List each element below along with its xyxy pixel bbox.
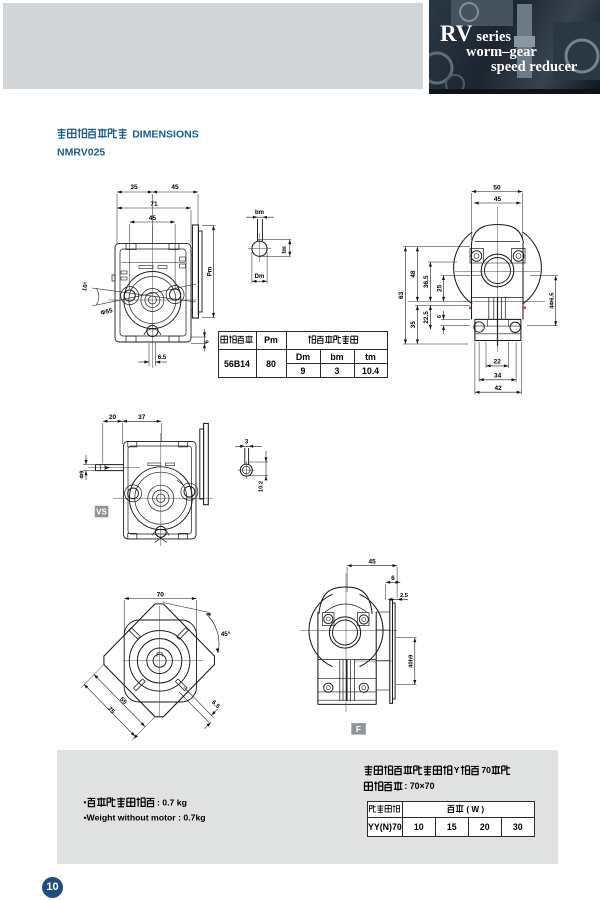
svg-text:63: 63 <box>398 291 405 299</box>
svg-text:48: 48 <box>410 270 417 278</box>
svg-text:VS: VS <box>96 508 107 517</box>
svg-text:42: 42 <box>494 385 502 392</box>
svg-text:22.5: 22.5 <box>423 311 430 324</box>
svg-text:37: 37 <box>138 414 146 421</box>
svg-text:Φ55: Φ55 <box>100 307 114 317</box>
svg-text:DIMENSIONS: DIMENSIONS <box>132 129 199 141</box>
svg-text:3: 3 <box>245 439 249 445</box>
svg-text:( W ): ( W ) <box>466 805 484 814</box>
svg-text:Φ9: Φ9 <box>80 470 86 479</box>
svg-text:F: F <box>356 724 361 734</box>
svg-text:6: 6 <box>437 314 443 318</box>
svg-text:35: 35 <box>410 321 417 329</box>
svg-text:10°: 10° <box>82 281 90 292</box>
svg-text:Y: Y <box>454 765 460 775</box>
svg-text:bm: bm <box>255 210 264 216</box>
svg-text:45: 45 <box>171 184 179 191</box>
svg-text:40h9: 40h9 <box>409 654 415 668</box>
svg-text:2.5: 2.5 <box>400 593 409 599</box>
svg-text:6.5: 6.5 <box>210 700 221 711</box>
svg-text:: 0.7 kg: : 0.7 kg <box>157 798 187 808</box>
svg-text:: 70×70: : 70×70 <box>404 781 434 791</box>
svg-text:4Φ6.5: 4Φ6.5 <box>550 292 556 309</box>
svg-text:6: 6 <box>391 575 395 582</box>
svg-text:6: 6 <box>204 339 210 343</box>
svg-text:34: 34 <box>494 373 502 380</box>
svg-text:36.5: 36.5 <box>423 275 430 288</box>
svg-text:•Weight without motor : 0.7kg: •Weight without motor : 0.7kg <box>84 813 206 823</box>
svg-text:55: 55 <box>118 696 128 706</box>
svg-text:45: 45 <box>149 215 157 222</box>
svg-text:35: 35 <box>130 184 138 191</box>
svg-text:45: 45 <box>494 196 502 203</box>
svg-text:71: 71 <box>150 201 158 208</box>
svg-text:70: 70 <box>481 765 491 775</box>
svg-text:50: 50 <box>493 184 501 191</box>
svg-text:70: 70 <box>157 591 165 598</box>
svg-text:6.5: 6.5 <box>158 355 167 361</box>
svg-text:•: • <box>84 798 87 807</box>
svg-text:45°: 45° <box>221 631 231 638</box>
svg-text:25: 25 <box>436 284 443 292</box>
svg-text:45: 45 <box>368 558 376 565</box>
svg-text:tm: tm <box>282 246 288 253</box>
svg-text:Dm: Dm <box>255 274 265 280</box>
svg-text:22: 22 <box>494 359 502 366</box>
svg-text:NMRV025: NMRV025 <box>57 147 105 159</box>
svg-text:Pm: Pm <box>206 266 213 276</box>
svg-text:20: 20 <box>109 414 117 421</box>
svg-text:10.2: 10.2 <box>259 481 265 492</box>
svg-text:75: 75 <box>106 706 116 716</box>
